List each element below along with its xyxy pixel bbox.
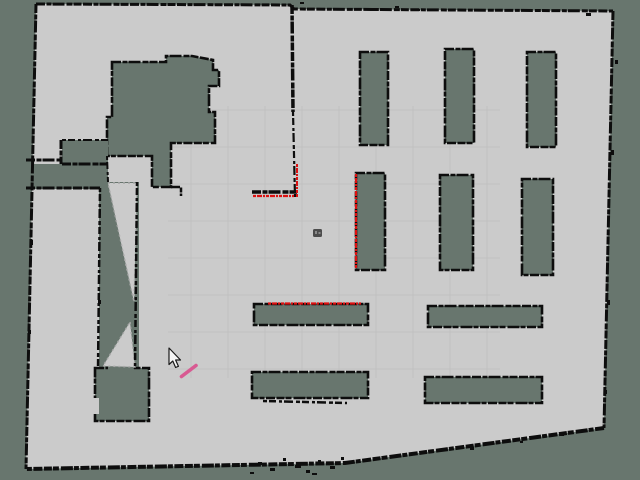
wall-noise-dot	[607, 300, 610, 305]
pillar-mid-3	[522, 179, 553, 275]
wall-noise-dot	[295, 465, 301, 468]
wall-noise-dot	[300, 2, 304, 4]
wall-noise-dot	[520, 441, 523, 443]
robot-highlight	[319, 232, 321, 234]
pillar-top-3	[527, 52, 556, 147]
bottom-room	[95, 368, 149, 421]
wall-noise-dot	[318, 460, 321, 462]
wall-noise-dot	[30, 240, 33, 245]
shelf-bar-3	[252, 372, 368, 398]
wall-noise-dot	[611, 150, 614, 155]
robot-footprint	[313, 229, 322, 237]
wall-noise-dot	[98, 300, 101, 304]
wall-noise-dot	[604, 390, 607, 394]
wall-noise-dot	[615, 60, 618, 64]
shelf-bar-2	[428, 306, 542, 327]
robot-marker	[313, 229, 322, 237]
wall-noise-dot	[28, 330, 31, 334]
wall-noise-dot	[395, 6, 399, 8]
robot-highlight	[315, 231, 317, 234]
left-strip	[26, 164, 108, 189]
bottom-room-notch	[92, 398, 99, 414]
wall-noise-dot	[415, 9, 420, 11]
pillar-top-1	[360, 52, 388, 145]
wall-noise-dot	[330, 466, 335, 469]
left-pocket-block	[62, 140, 108, 166]
shelf-bar-4	[425, 377, 542, 403]
wall-noise-dot	[341, 457, 344, 460]
wall-noise-dot	[312, 473, 317, 475]
wall-noise-dot	[470, 447, 474, 450]
map-viewport	[0, 0, 640, 480]
pillar-mid-1	[356, 173, 385, 270]
map-canvas[interactable]	[0, 0, 640, 480]
wall-noise-dot	[258, 462, 262, 465]
shelf-bar-1	[254, 304, 368, 325]
wall-noise-dot	[270, 468, 275, 471]
pillar-top-2	[445, 49, 474, 143]
wall-noise-dot	[250, 472, 254, 474]
wall-noise-dot	[370, 8, 375, 11]
wall-noise-dot	[306, 470, 310, 473]
wall-noise-dot	[560, 434, 564, 436]
pillar-mid-2	[440, 175, 473, 270]
wall-noise-dot	[283, 458, 286, 461]
wall-noise-dot	[586, 13, 591, 16]
